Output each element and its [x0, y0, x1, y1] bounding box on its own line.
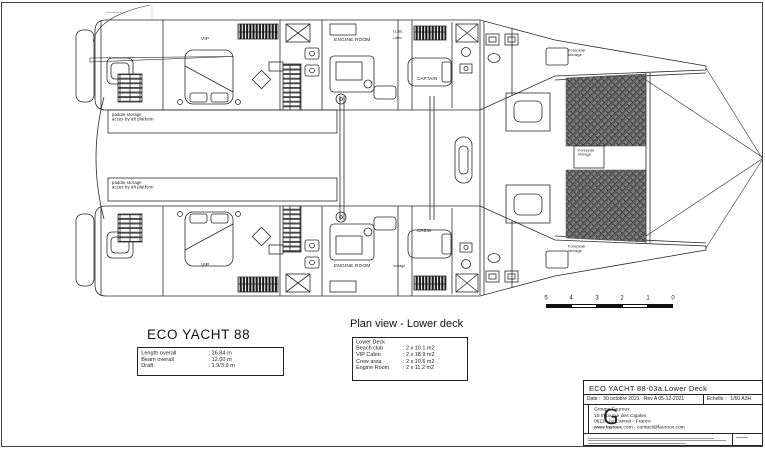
label-storage-bottom: Storage: [393, 265, 405, 269]
label-engine-room-top: ENGINE ROOM: [334, 38, 370, 44]
deck-hatch-1: [506, 93, 550, 131]
area-row-engine-room: Engine Room: 2 x 11.2 m2: [356, 365, 465, 371]
scale-bar-segments: [546, 304, 673, 308]
vip-wardrobe: [238, 24, 278, 39]
label-paddle-storage-2: paddle storage acces by aft platform: [112, 181, 154, 191]
areas-table: Lower Deck Beach club: 2 x 10.1 m2 VIP C…: [352, 337, 468, 381]
drawing-sheet: VIP ENGINE ROOM LL.BL Linen CAPTAIN Fore…: [0, 0, 765, 450]
aft-platform-curve: [96, 97, 104, 219]
deck-hatch-2: [506, 185, 550, 223]
trampoline-net-bottom: [566, 170, 646, 242]
center-deck: [96, 21, 762, 295]
spec-row-draft: Draft: 1.9/3.9 m: [141, 363, 280, 370]
trampoline-net-top: [566, 74, 646, 146]
label-linen-code: LL.BL: [393, 30, 403, 34]
gangway-lines: [90, 5, 233, 62]
company-row: G Groupe Fauroux Groupe Fauroux 10 Impas…: [584, 404, 762, 433]
label-engine-room-bottom: ENGINE ROOM: [334, 264, 370, 270]
label-forepeak-bottom: Forepeak storage: [568, 245, 586, 254]
scale-tick-5: 5: [542, 295, 551, 301]
forward-crossbeam: [646, 73, 650, 243]
date-scale-row: Date : 30 octobre 2021 Rev A 05-12-2021 …: [584, 394, 762, 404]
scale-tick-4: 4: [567, 295, 576, 301]
document-title: ECO YACHT 88-03a.Lower Deck: [584, 381, 762, 394]
revision-box: [732, 434, 762, 446]
title-block: ECO YACHT 88-03a.Lower Deck Date : 30 oc…: [583, 380, 763, 446]
center-pod: [455, 137, 472, 183]
fine-print-lines: [584, 434, 732, 446]
label-crew: CREW: [417, 229, 431, 234]
scale-tick-2: 2: [618, 295, 627, 301]
engine-block: [330, 56, 374, 92]
date-revision: Date : 30 octobre 2021 Rev A 05-12-2021: [584, 395, 706, 404]
plan-view-heading: Plan view - Lower deck: [350, 318, 463, 330]
company-logo: G Groupe Fauroux: [584, 405, 589, 433]
scale-tick-3: 3: [593, 295, 602, 301]
label-paddle-storage-1: paddle storage acces by aft platform: [112, 113, 154, 123]
stern-stairs: [118, 74, 142, 102]
scale-bar: 5 4 3 2 1 0: [546, 295, 673, 310]
stern-platform: [76, 30, 94, 102]
label-vip-top: VIP: [201, 37, 209, 43]
company-contact: www.fauroux.com - contact@fauroux.com: [594, 425, 712, 431]
cabin-stairs: [283, 64, 301, 110]
label-forepeak-top: Forepeak storage: [568, 49, 586, 58]
illegible-note: [106, 12, 122, 13]
label-forepeak-center: Forepeak storage: [578, 149, 594, 157]
company-address: Groupe Fauroux 10 Impasse des Cigales 06…: [594, 407, 712, 431]
captain-wardrobe: [414, 26, 446, 40]
scale-tick-1: 1: [643, 295, 652, 301]
bow-rigging: [646, 68, 762, 248]
scale-tick-0: 0: [669, 295, 678, 301]
label-linen: Linen: [393, 37, 402, 41]
chair: [252, 70, 270, 88]
specs-table: Length overall: 26.84 m Beam overall: 12…: [137, 347, 284, 376]
yacht-title: ECO YACHT 88: [147, 327, 250, 342]
label-captain: CAPTAIN: [417, 77, 437, 82]
fine-print-row: [584, 433, 762, 446]
forepeak-hatch: [546, 48, 568, 65]
label-vip-bottom: VIP: [201, 263, 209, 269]
main-crossbeam: [480, 21, 484, 295]
scale-value: Echelle : 1/60 A3H: [704, 395, 765, 404]
